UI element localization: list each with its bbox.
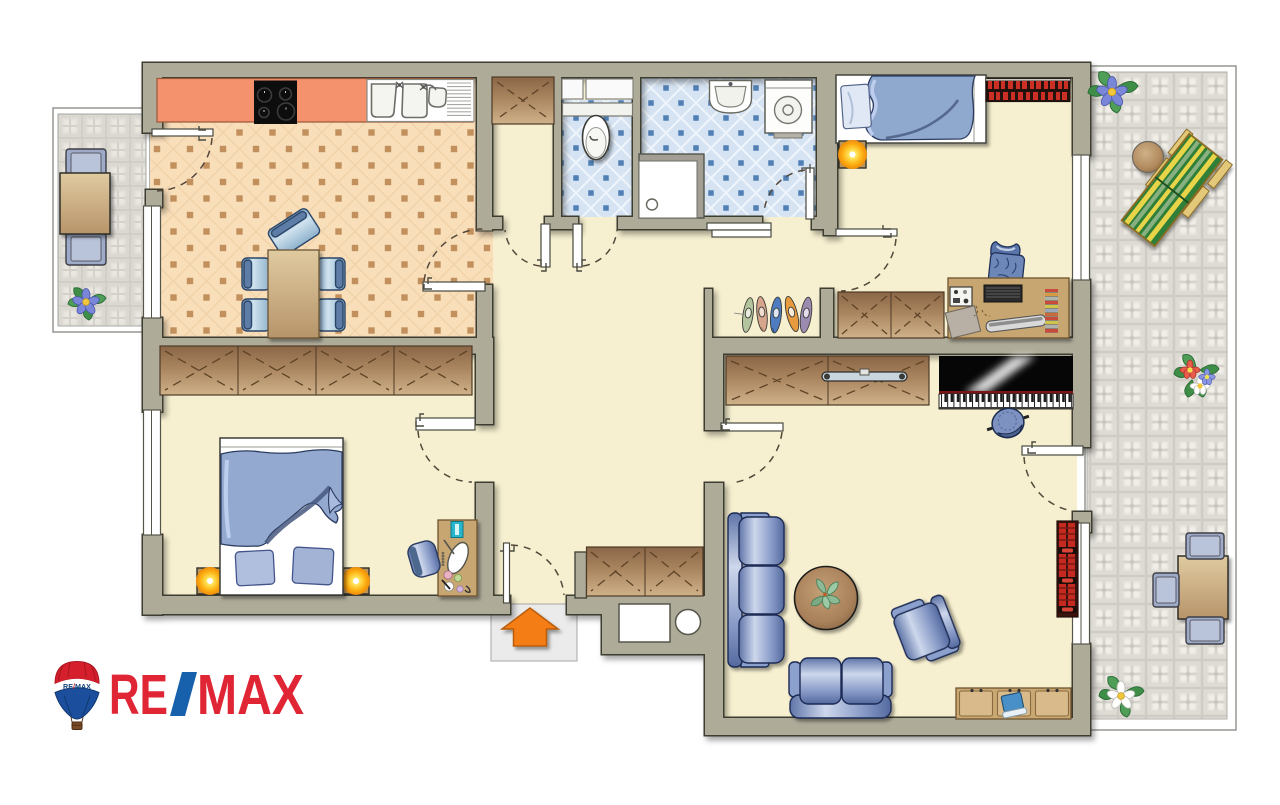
svg-text:MAX: MAX: [197, 663, 304, 726]
svg-text:RE: RE: [109, 663, 168, 726]
svg-text:RE/MAX: RE/MAX: [63, 682, 91, 691]
